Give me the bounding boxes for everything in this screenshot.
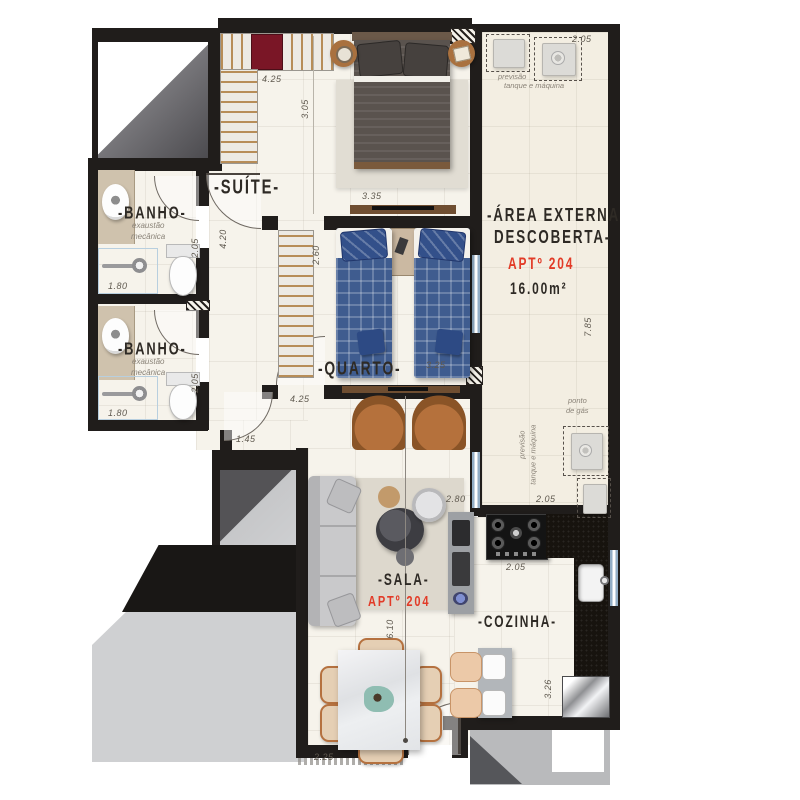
dimension-line-sala-end (403, 738, 408, 743)
suite-tv (372, 206, 434, 210)
dim-externa-len: 7.85 (583, 317, 593, 337)
label-area-externa-2: DESCOBERTA- (494, 228, 611, 248)
quarto-bed1-pillow (340, 228, 388, 262)
outside-gray-body (92, 612, 304, 762)
gas-small-box (577, 478, 611, 518)
suite-bed-foot (354, 162, 450, 169)
gas-small-icon (583, 484, 607, 514)
kitchen-counter-top (546, 514, 608, 558)
label-suite: -SUÍTE- (214, 177, 280, 200)
wall-right-outer (608, 24, 620, 516)
note-previsao-top-1: previsão (498, 72, 526, 81)
coffee-table-tray (412, 488, 446, 522)
label-quarto: -QUARTO- (318, 358, 401, 379)
banho1-toilet (169, 256, 197, 296)
dim-sala-len: 6.10 (385, 619, 395, 639)
dim-cozinha-len: 3.26 (543, 679, 553, 699)
dim-suite-depth: 3.05 (300, 99, 310, 119)
bar-stool-1-pad (482, 654, 506, 680)
suite-pillow-right (403, 42, 450, 80)
washer-drum-icon (551, 51, 565, 65)
label-externa-area: 16.00m² (510, 279, 567, 298)
note-banho1-1: exaustão (132, 221, 164, 231)
dimension-line-sala (405, 396, 406, 742)
sofa-cushion-line1 (320, 525, 356, 527)
label-sala-apt: APTº 204 (368, 592, 430, 610)
note-banho1-2: mecânica (131, 232, 165, 242)
note-ponto-gas-2: de gás (566, 406, 589, 415)
note-previsao-top-2: tanque e máquina (504, 81, 564, 90)
kitchen-appliance-1 (452, 520, 470, 546)
sofa-back (308, 476, 320, 626)
wall-externa-top (468, 24, 614, 32)
dimension-line-suite (313, 36, 314, 214)
label-externa-apt: APTº 204 (508, 254, 574, 273)
wall-suite-quarto-stub (262, 216, 278, 230)
dim-cooktop-w: 2.05 (506, 562, 526, 572)
wall-banho-bottom (88, 420, 208, 431)
banho2-shower-zone (98, 376, 158, 420)
wall-sala-left (296, 448, 308, 748)
bar-stool-2 (450, 688, 482, 718)
door-suite-leaf (206, 173, 260, 175)
dim-banho1-h: 2.05 (190, 238, 200, 258)
dim-sala-w: 2.80 (446, 494, 466, 504)
wall-hall-bottom (220, 450, 308, 470)
banho2-shower-knob (132, 386, 147, 401)
quarto-tv (388, 387, 428, 391)
dim-suite-bed: 3.35 (362, 191, 382, 201)
label-banho1: -BANHO- (118, 202, 187, 222)
dim-suite-closet: 4.25 (262, 74, 282, 84)
dim-hall-w: 1.45 (236, 434, 256, 444)
suite-sheet-fold (354, 76, 450, 82)
void-midleft-frame (212, 450, 220, 550)
fridge (562, 676, 610, 718)
note-ponto-gas-1: ponto (568, 396, 587, 405)
dim-quarto-w: 3.25 (426, 360, 446, 370)
wall-void-top (92, 28, 222, 42)
provision-tank-box (486, 34, 530, 72)
label-area-externa-1: -ÁREA EXTERNA (487, 206, 620, 226)
dim-quarto-w2: 4.25 (290, 394, 310, 404)
suite-closet-shirt (251, 34, 283, 70)
bar-stool-2-pad (482, 690, 506, 716)
outside-black-band (122, 545, 305, 612)
void-room-topleft (98, 42, 208, 158)
window-quarto-externa (472, 255, 480, 333)
quarto-closet (278, 230, 314, 378)
gas-dot-icon (579, 444, 592, 457)
armchair-1 (352, 394, 406, 450)
dim-dining-w: 2.25 (314, 752, 334, 762)
quarto-bed1-towel (356, 328, 385, 355)
note-banho2-2: mecânica (131, 368, 165, 378)
suite-nightstand-left-lamp (336, 46, 353, 63)
bar-stool-1 (450, 652, 482, 682)
suite-closet-side (220, 69, 258, 164)
note-banho2-1: exaustão (132, 357, 164, 367)
outside-bottom-right-white (552, 730, 604, 772)
dim-banho2-h: 2.05 (190, 373, 200, 393)
banho1-shower-knob (132, 258, 147, 273)
window-sala-externa (472, 452, 480, 508)
wall-void-left (92, 42, 98, 162)
label-sala: -SALA- (378, 570, 430, 589)
note-previsao-right-1: previsão (517, 431, 526, 459)
dining-centerpiece (364, 686, 394, 712)
dim-quarto-closet: 2.60 (311, 245, 321, 265)
quarto-bed2-towel (435, 329, 464, 356)
banho2-shower-bar (102, 392, 136, 396)
cooktop-burner-3 (491, 536, 505, 550)
dim-externa-top: 2.05 (572, 34, 592, 44)
kitchen-appliance-2 (452, 552, 470, 586)
cooktop-burner-4 (527, 536, 541, 550)
cooktop-burner-1 (491, 518, 505, 532)
kitchen-faucet (600, 576, 609, 585)
dim-banho2-w: 1.80 (108, 408, 128, 418)
armchair-2 (412, 394, 466, 450)
tank-icon (493, 39, 524, 68)
label-cozinha: -COZINHA- (478, 612, 557, 631)
kitchen-kettle (453, 592, 468, 605)
cooktop-burner-2 (527, 518, 541, 532)
banho1-shower-zone (98, 248, 158, 294)
label-banho2: -BANHO- (118, 338, 187, 358)
sofa-cushion-line2 (320, 575, 356, 577)
floor-plan-canvas: -SUÍTE- -BANHO- exaustão mecânica -BANHO… (0, 0, 800, 800)
cooktop-center-knob (510, 527, 522, 539)
dim-hall-h: 4.20 (218, 229, 228, 249)
window-cozinha (610, 550, 618, 606)
dim-banho1-w: 1.80 (108, 281, 128, 291)
dim-externa-bottom: 2.05 (536, 494, 556, 504)
banho1-shower-bar (102, 264, 136, 268)
wall-kitchen-bottom (443, 716, 620, 730)
note-previsao-right-2: tanque e máquina (528, 425, 537, 485)
suite-pillow-left (356, 40, 403, 78)
quarto-bed2-pillow (418, 228, 467, 263)
cooktop-knobs-row (496, 552, 536, 556)
coffee-table-side (378, 486, 400, 508)
